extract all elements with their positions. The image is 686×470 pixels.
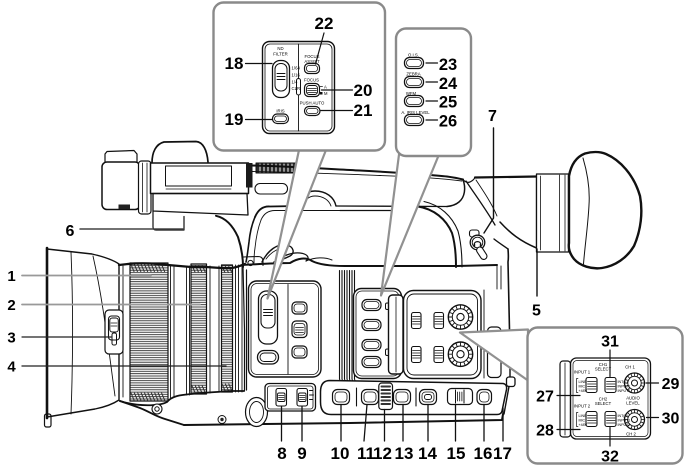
svg-text:1/4: 1/4	[292, 79, 299, 84]
svg-text:15: 15	[447, 444, 466, 463]
svg-text:1: 1	[7, 268, 15, 285]
svg-text:LINE: LINE	[579, 414, 588, 418]
svg-text:13: 13	[395, 444, 414, 463]
svg-text:CH 2: CH 2	[626, 432, 636, 437]
svg-text:ZEBRA: ZEBRA	[406, 72, 420, 77]
svg-text:29: 29	[662, 376, 680, 393]
svg-text:CLR: CLR	[292, 86, 301, 91]
svg-text:FILTER: FILTER	[273, 52, 287, 57]
svg-text:31: 31	[601, 334, 619, 351]
svg-text:WFM: WFM	[406, 91, 417, 96]
svg-text:INPUT 1: INPUT 1	[574, 370, 591, 375]
svg-text:9: 9	[297, 444, 306, 463]
svg-text:MIC: MIC	[579, 385, 586, 389]
svg-text:12: 12	[373, 444, 392, 463]
svg-text:O.I.S.: O.I.S.	[408, 52, 419, 57]
svg-text:5: 5	[532, 303, 541, 320]
svg-text:INPUT1: INPUT1	[618, 385, 631, 389]
svg-text:23: 23	[439, 56, 457, 74]
svg-text:INPUT2: INPUT2	[618, 389, 631, 393]
svg-text:16: 16	[474, 444, 493, 463]
svg-text:8: 8	[277, 444, 286, 463]
svg-text:1/16: 1/16	[292, 73, 301, 78]
svg-text:SELECT: SELECT	[595, 367, 612, 372]
svg-text:A. IRIS LEVEL: A. IRIS LEVEL	[401, 110, 430, 115]
svg-text:ASSIST: ASSIST	[304, 59, 320, 64]
svg-text:INT(R): INT(R)	[618, 414, 629, 418]
svg-text:SELECT: SELECT	[595, 401, 612, 406]
svg-text:+48V: +48V	[579, 389, 588, 393]
svg-text:+48V: +48V	[579, 423, 588, 427]
svg-text:14: 14	[418, 444, 437, 463]
svg-text:INPUT1: INPUT1	[618, 419, 631, 423]
svg-text:INPUT 2: INPUT 2	[574, 404, 591, 409]
svg-text:28: 28	[536, 422, 554, 439]
svg-text:PUSH AUTO: PUSH AUTO	[300, 101, 325, 106]
svg-text:25: 25	[439, 94, 457, 112]
svg-text:6: 6	[66, 223, 75, 240]
svg-text:1/64: 1/64	[292, 66, 301, 71]
svg-text:CH 1: CH 1	[625, 364, 635, 369]
svg-text:32: 32	[601, 448, 619, 465]
svg-text:21: 21	[354, 101, 373, 120]
svg-text:7: 7	[488, 108, 497, 125]
svg-text:24: 24	[439, 75, 458, 93]
svg-text:26: 26	[439, 113, 457, 131]
svg-text:LINE: LINE	[579, 380, 588, 384]
svg-text:INT(L): INT(L)	[618, 380, 628, 384]
svg-text:3: 3	[7, 330, 15, 347]
svg-text:M: M	[324, 91, 328, 96]
svg-text:4: 4	[7, 359, 16, 376]
svg-text:17: 17	[493, 444, 512, 463]
svg-text:2: 2	[7, 297, 15, 314]
svg-text:INPUT2: INPUT2	[618, 423, 631, 427]
svg-text:A: A	[324, 84, 327, 89]
svg-text:19: 19	[225, 110, 244, 129]
svg-text:27: 27	[536, 388, 554, 405]
svg-text:IRIS: IRIS	[276, 109, 284, 114]
svg-text:LEVEL: LEVEL	[626, 400, 640, 405]
svg-text:20: 20	[354, 81, 373, 100]
svg-text:30: 30	[662, 410, 680, 427]
svg-text:22: 22	[315, 14, 334, 33]
svg-text:10: 10	[331, 444, 350, 463]
svg-text:ND: ND	[277, 46, 283, 51]
svg-text:FOCUS: FOCUS	[304, 78, 319, 83]
svg-text:MIC: MIC	[579, 419, 586, 423]
svg-text:18: 18	[225, 54, 244, 73]
